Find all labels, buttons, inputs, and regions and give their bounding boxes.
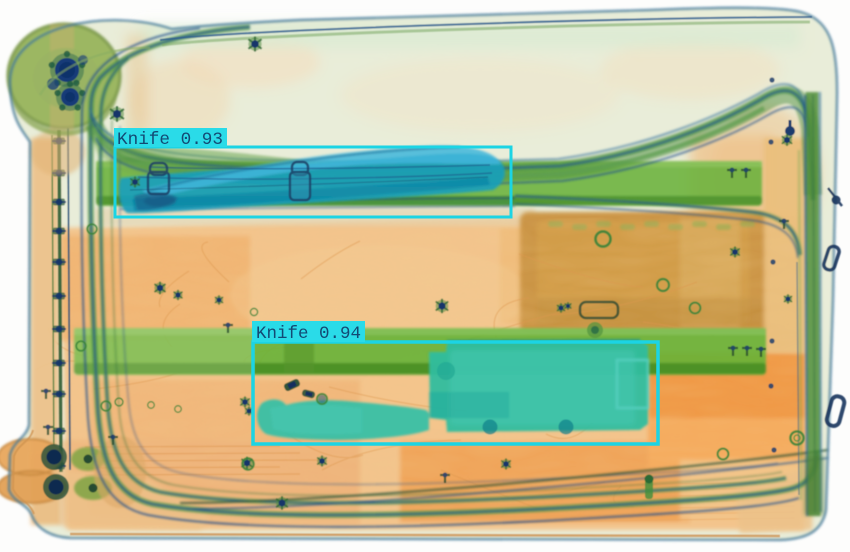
svg-text:Knife 0.93: Knife 0.93	[117, 130, 223, 150]
svg-text:Knife 0.94: Knife 0.94	[256, 324, 361, 344]
